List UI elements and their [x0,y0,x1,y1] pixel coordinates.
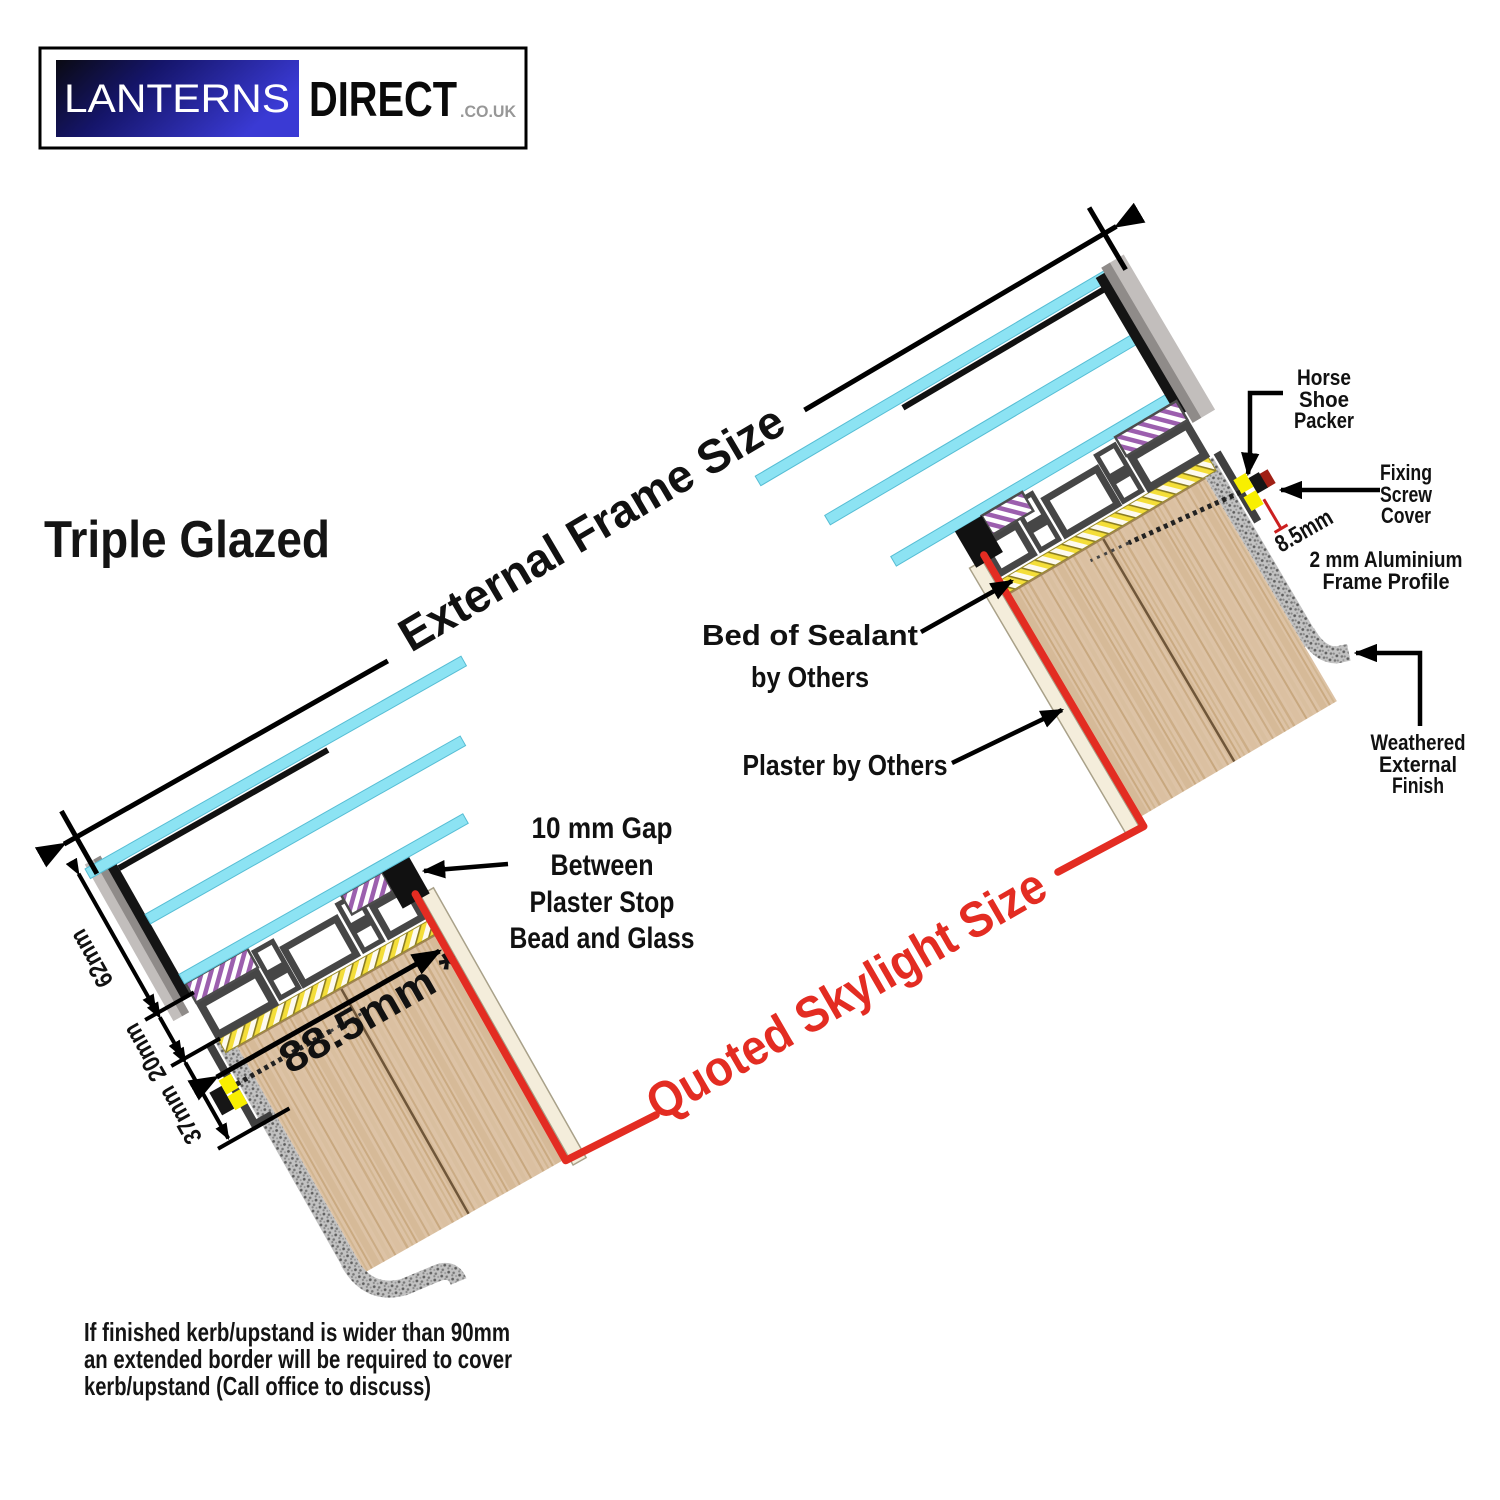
svg-text:DIRECT: DIRECT [309,73,457,127]
svg-text:Bed of Sealant: Bed of Sealant [702,620,918,652]
svg-text:.CO.UK: .CO.UK [460,102,517,121]
svg-text:Triple Glazed: Triple Glazed [44,511,330,569]
svg-text:Cover: Cover [1381,503,1431,528]
svg-text:Between: Between [551,849,654,882]
svg-text:Bead and Glass: Bead and Glass [510,922,695,955]
svg-text:kerb/upstand (Call office to d: kerb/upstand (Call office to discuss) [84,1371,431,1401]
svg-text:Plaster by Others: Plaster by Others [743,750,948,782]
svg-text:Plaster Stop: Plaster Stop [530,886,675,919]
svg-text:Packer: Packer [1294,408,1354,433]
svg-text:LANTERNS: LANTERNS [64,77,290,121]
svg-text:Frame Profile: Frame Profile [1323,569,1450,594]
svg-text:If finished kerb/upstand is wi: If finished kerb/upstand is wider than 9… [84,1317,510,1347]
svg-text:Finish: Finish [1392,773,1444,798]
svg-text:10 mm Gap: 10 mm Gap [532,812,673,845]
svg-text:an extended border will be req: an extended border will be required to c… [84,1344,512,1374]
svg-text:by Others: by Others [751,662,869,694]
